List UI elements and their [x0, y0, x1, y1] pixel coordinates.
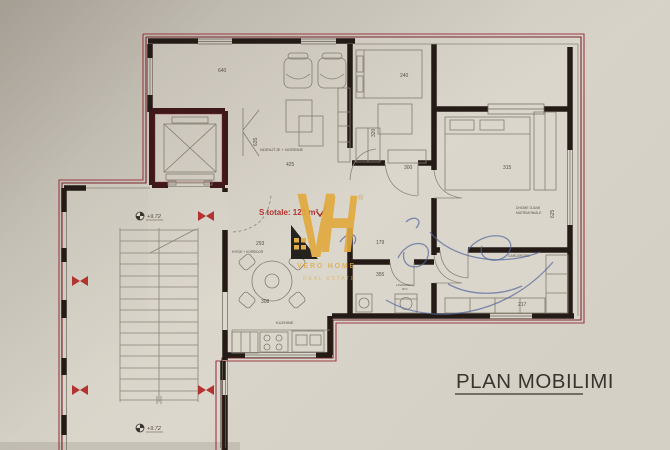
- registered-trademark-icon: ®: [358, 194, 364, 202]
- dim-living-top: 640: [218, 68, 227, 74]
- elevation-top-label: +9.72: [147, 214, 161, 220]
- dim-hall-width: 293: [256, 241, 265, 247]
- master-bedroom-label-2: MATRIMONIALE: [516, 211, 542, 215]
- paper-edge-shadow: [0, 442, 240, 450]
- watermark: V H ® VERO HOME REAL ESTATE: [291, 175, 364, 282]
- dim-corridor-width: 179: [376, 240, 385, 246]
- dim-living-width: 425: [286, 162, 295, 168]
- floor-plan-photo: +9.72 +9.72: [0, 0, 670, 450]
- elevation-marker-bottom: +9.72: [136, 424, 163, 432]
- dim-bedroom-width: 300: [404, 165, 413, 171]
- elevation-marker-top: +9.72: [136, 212, 163, 220]
- dim-garderobe-width: 217: [518, 302, 527, 308]
- dim-table-width: 308: [261, 299, 270, 305]
- hall-label: HYRJE + KORRIDOR: [232, 250, 264, 254]
- dim-bed-width: 240: [400, 73, 409, 79]
- watermark-brand: VERO HOME: [297, 263, 356, 270]
- living-room-label: NDENJTJE + NGRENIE: [260, 147, 304, 152]
- dim-master-height: 625: [550, 209, 556, 218]
- dim-master-width: 315: [503, 165, 512, 171]
- title-block: PLAN MOBILIMI: [455, 370, 614, 394]
- plan-title: PLAN MOBILIMI: [456, 370, 614, 393]
- dim-bedroom-height: 320: [371, 128, 377, 137]
- watermark-tagline: REAL ESTATE: [303, 276, 356, 282]
- floor-plan-svg: +9.72 +9.72: [0, 0, 670, 450]
- master-bedroom-label-1: DHOME GJUMI: [516, 206, 540, 210]
- dim-living-height: 635: [253, 137, 259, 146]
- laundry-label-2: W.C.: [402, 287, 409, 291]
- dim-corridor-length: 355: [376, 272, 385, 278]
- watermark-letter-h: H: [321, 179, 357, 270]
- elevation-bottom-label: +9.72: [147, 426, 161, 432]
- kitchen-label: KUZHINE: [276, 320, 294, 325]
